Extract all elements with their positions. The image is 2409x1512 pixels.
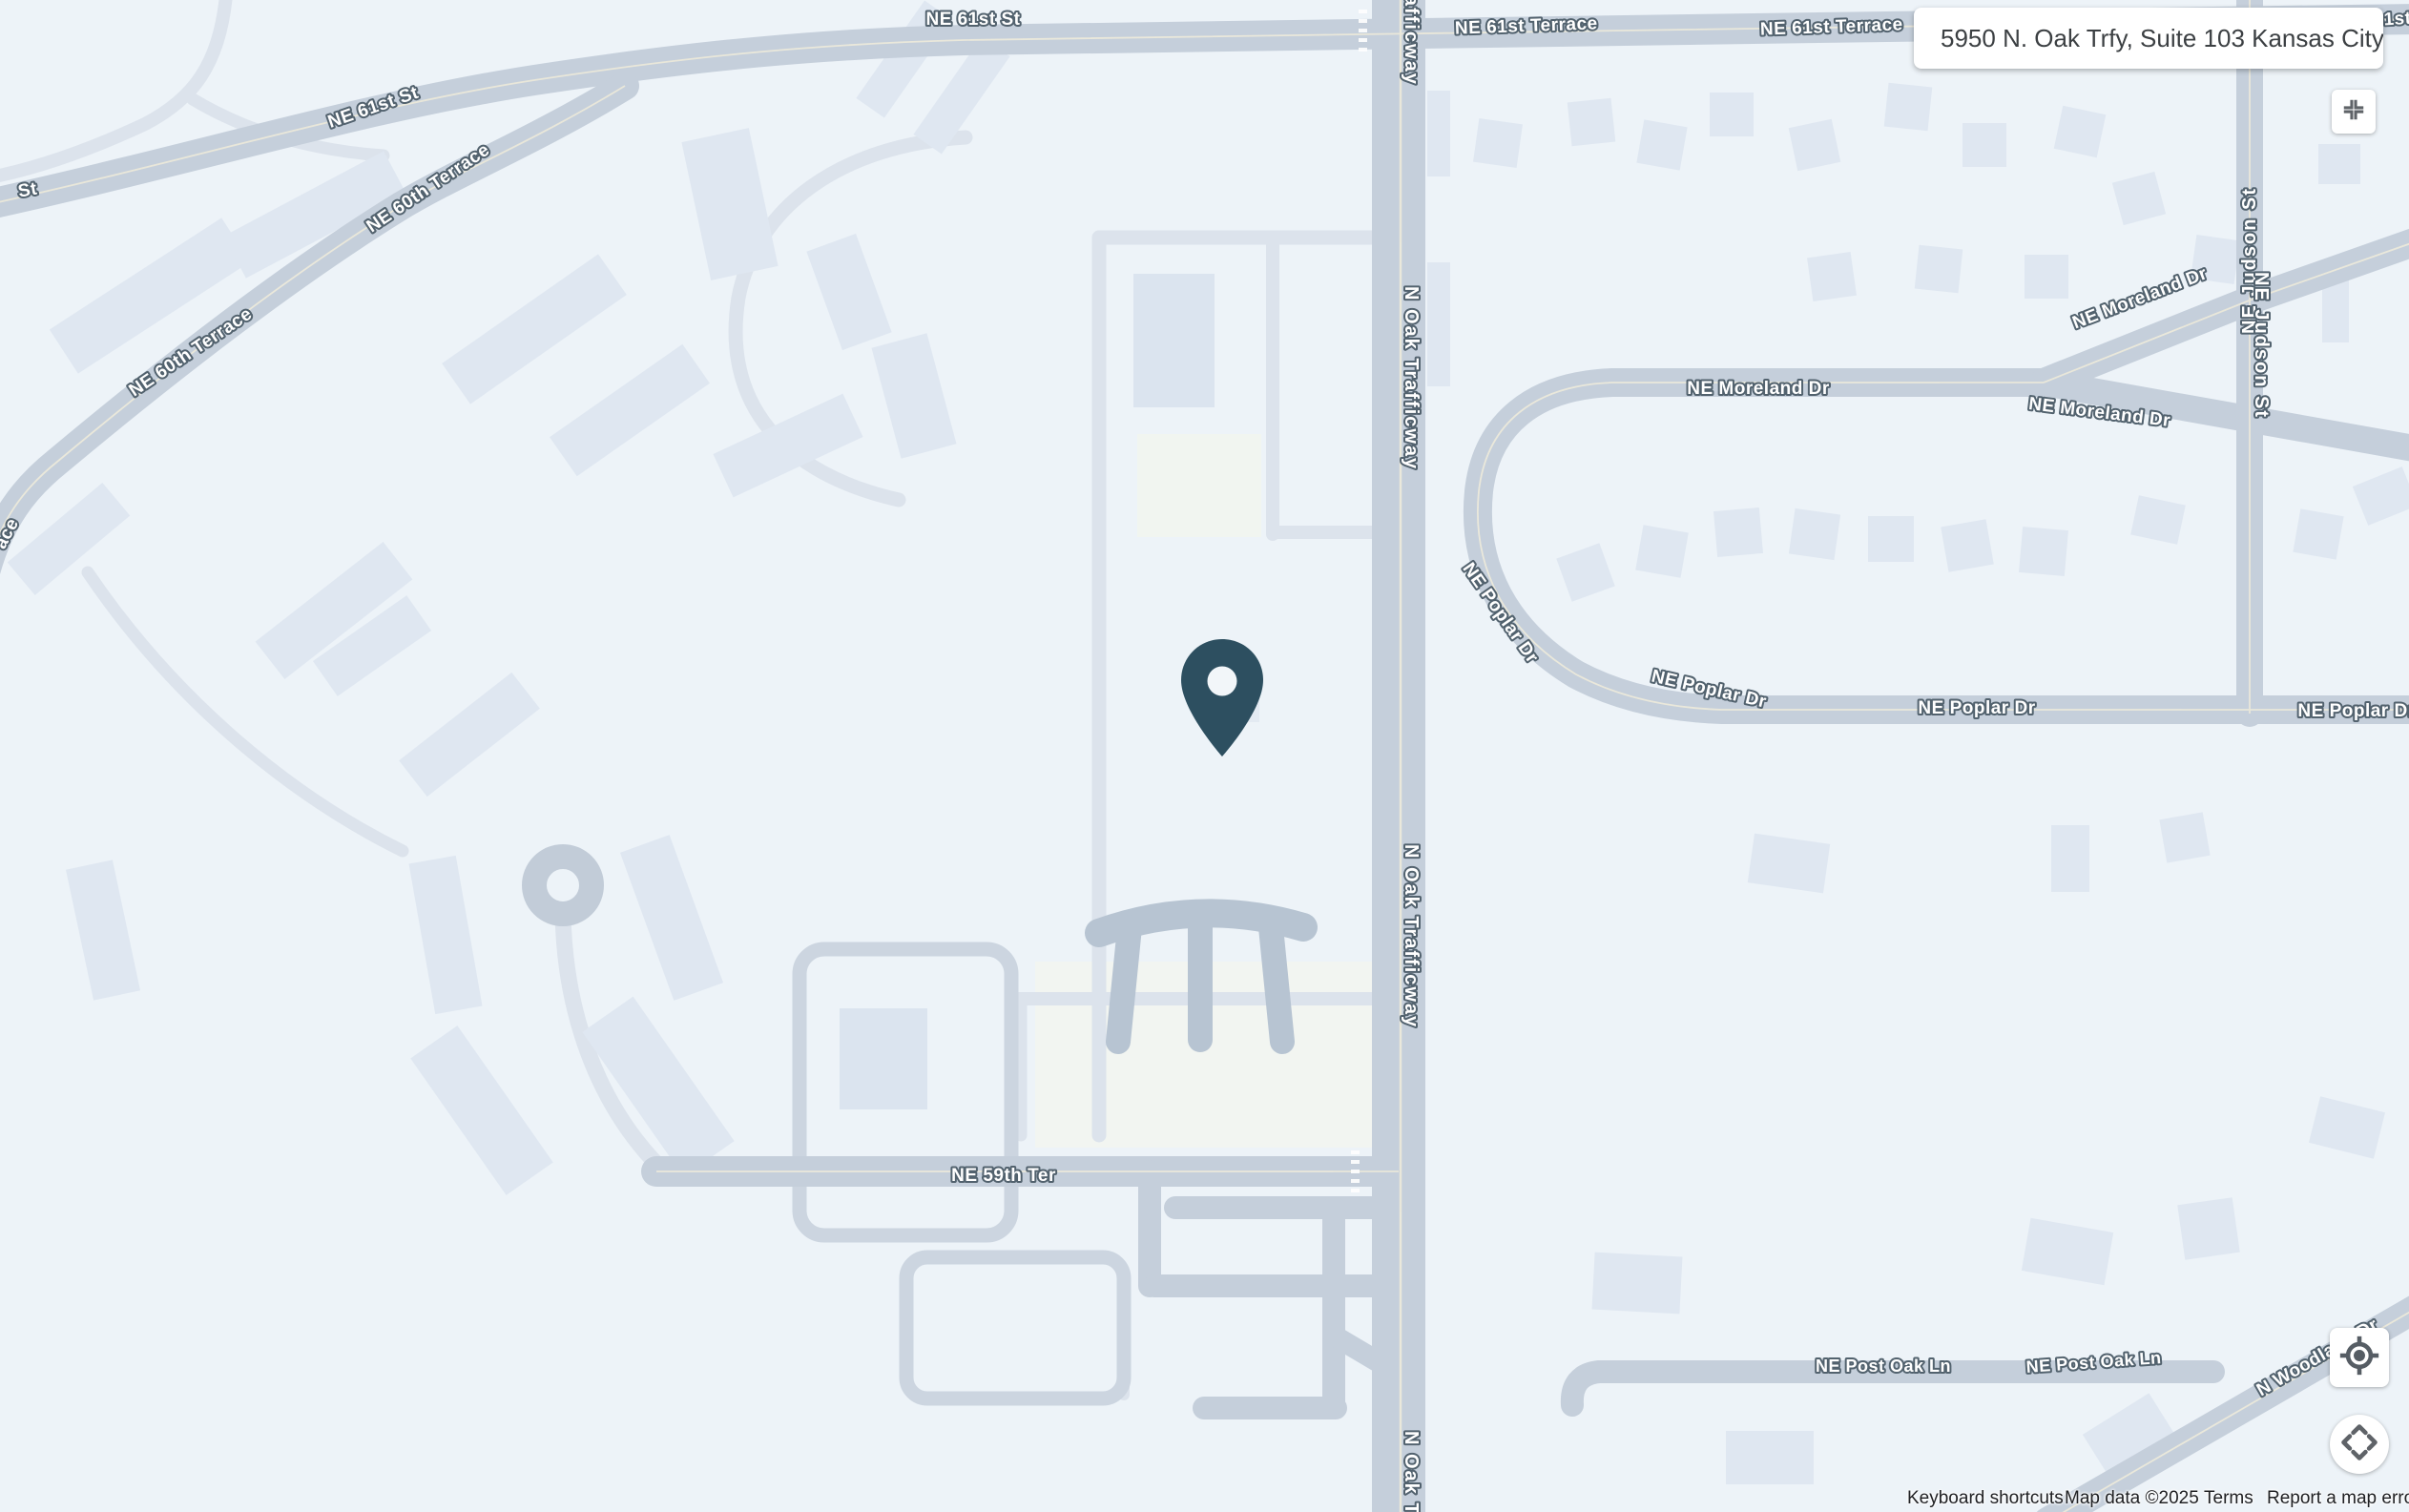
my-location-button[interactable] <box>2330 1328 2389 1387</box>
my-location-crosshair-icon <box>2338 1335 2380 1381</box>
pan-button[interactable] <box>2330 1415 2389 1474</box>
fullscreen-button[interactable] <box>2332 90 2376 134</box>
address-chip-text: 5950 N. Oak Trfy, Suite 103 Kansas City,… <box>1941 24 2383 53</box>
terms-link[interactable]: Terms <box>2204 1486 2253 1511</box>
map-canvas[interactable]: NE 61st St NE 61st Terrace NE 61st Terra… <box>0 0 2409 1512</box>
street-label: NE 59th Ter <box>951 1166 1056 1186</box>
map-data-copyright: Map data ©2025 <box>2065 1486 2199 1511</box>
street-label: Trafficway <box>1401 0 1422 86</box>
street-label: St <box>16 178 39 201</box>
street-label: N Oak Trafficway <box>1401 286 1422 470</box>
street-label: NE Moreland Dr <box>1687 379 1830 399</box>
pan-arrows-icon <box>2338 1421 2380 1468</box>
street-label: NE Poplar Dr <box>2297 701 2409 721</box>
parking-structure <box>1099 913 1303 1042</box>
street-label: NE Post Oak Ln <box>1816 1357 1951 1376</box>
street-label: NE Judson St <box>2251 272 2272 419</box>
street-label: N Oak Trafficway <box>1401 844 1422 1028</box>
address-chip[interactable]: 5950 N. Oak Trfy, Suite 103 Kansas City,… <box>1914 8 2383 69</box>
fullscreen-icon <box>2339 95 2368 129</box>
street-label: N Oak Trafficway <box>1401 1431 1422 1512</box>
report-map-error-link[interactable]: Report a map error <box>2267 1486 2409 1511</box>
map-screenshot: { "map": { "street_labels": [ {"text": "… <box>0 0 2409 1512</box>
street-label: NE Poplar Dr <box>1918 698 2035 718</box>
street-label: NE 61st St <box>926 10 1021 30</box>
keyboard-shortcuts-link[interactable]: Keyboard shortcuts <box>1907 1486 2064 1511</box>
